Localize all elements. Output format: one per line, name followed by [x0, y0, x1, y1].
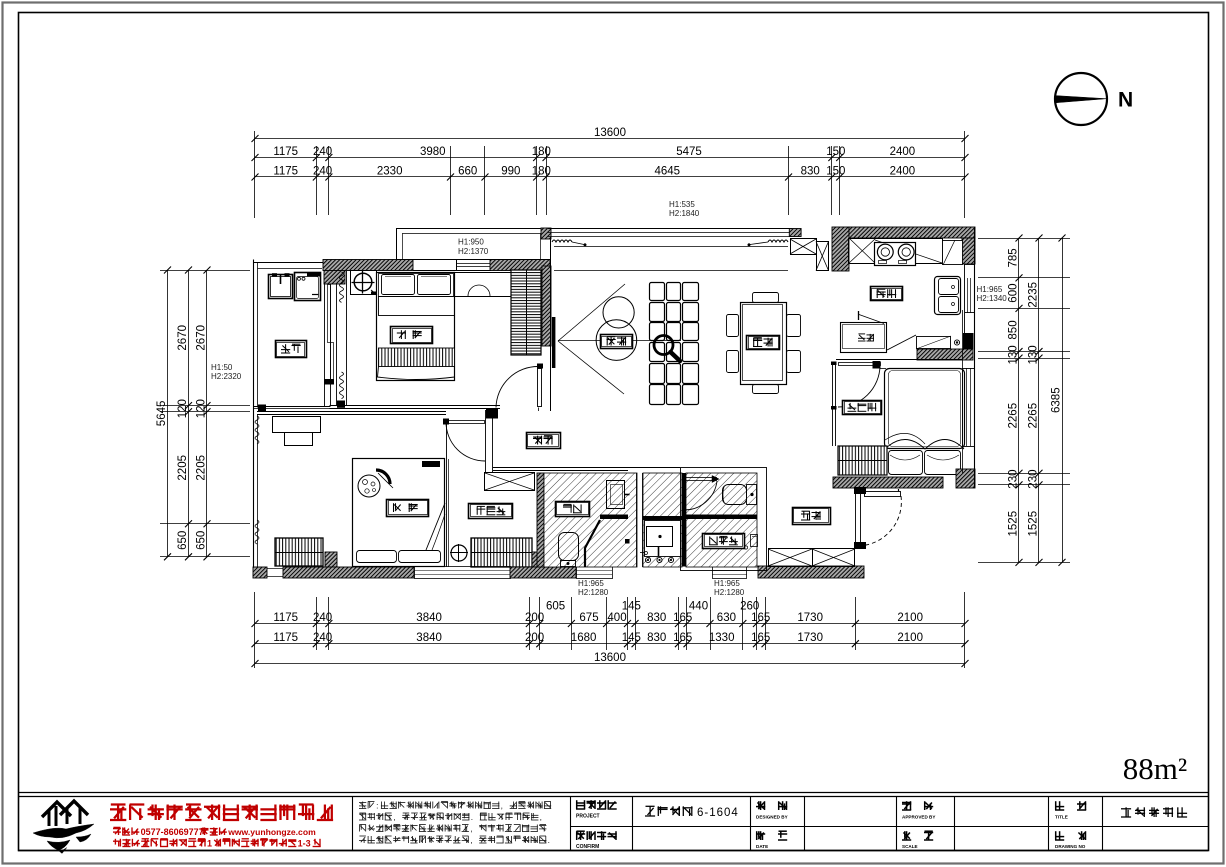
- svg-text:1175: 1175: [273, 166, 298, 178]
- svg-text:1175: 1175: [273, 146, 298, 158]
- svg-text:1730: 1730: [797, 612, 823, 624]
- svg-text:1730: 1730: [797, 632, 823, 644]
- svg-text:H2:1280: H2:1280: [578, 588, 609, 597]
- svg-text:4645: 4645: [655, 166, 681, 178]
- svg-text:TITLE: TITLE: [1055, 815, 1068, 820]
- svg-text:165: 165: [751, 632, 770, 644]
- svg-text:785: 785: [1008, 248, 1020, 267]
- svg-text:165: 165: [751, 612, 770, 624]
- svg-text:165: 165: [673, 632, 692, 644]
- svg-text:660: 660: [458, 166, 477, 178]
- svg-text:1-3: 1-3: [298, 839, 311, 849]
- svg-text:2265: 2265: [1008, 403, 1020, 429]
- svg-text:6385: 6385: [1051, 387, 1063, 413]
- svg-text:13600: 13600: [594, 127, 626, 139]
- svg-text:850: 850: [1008, 320, 1020, 339]
- svg-text:120: 120: [196, 399, 208, 418]
- svg-text:165: 165: [673, 612, 692, 624]
- svg-text:240: 240: [313, 632, 332, 644]
- svg-text:6-1604: 6-1604: [697, 807, 739, 819]
- svg-text:,: ,: [470, 835, 472, 845]
- svg-text:400: 400: [607, 612, 626, 624]
- svg-text:88m²: 88m²: [1123, 751, 1187, 786]
- svg-text:.: .: [548, 835, 550, 845]
- svg-text:H1:965: H1:965: [977, 285, 1003, 294]
- svg-text:230: 230: [1028, 470, 1040, 489]
- svg-text:630: 630: [717, 612, 736, 624]
- svg-text:200: 200: [525, 612, 544, 624]
- svg-text:2330: 2330: [377, 166, 403, 178]
- svg-text:200: 200: [525, 632, 544, 644]
- svg-text:145: 145: [622, 601, 641, 613]
- svg-text:H2:1340: H2:1340: [977, 294, 1008, 303]
- svg-text:0577-86069777: 0577-86069777: [141, 827, 204, 837]
- svg-text:240: 240: [313, 146, 332, 158]
- svg-text:150: 150: [826, 146, 845, 158]
- svg-text:3840: 3840: [416, 632, 442, 644]
- svg-text:,: ,: [501, 801, 503, 811]
- svg-text:830: 830: [647, 612, 666, 624]
- svg-text:2670: 2670: [177, 325, 189, 351]
- svg-text:H2:1370: H2:1370: [458, 247, 489, 256]
- svg-text:,: ,: [470, 824, 472, 834]
- svg-text:1680: 1680: [571, 632, 597, 644]
- svg-text:3840: 3840: [416, 612, 442, 624]
- svg-text:240: 240: [313, 612, 332, 624]
- svg-text::: :: [376, 801, 378, 811]
- svg-text:2400: 2400: [890, 146, 916, 158]
- svg-text:H1:965: H1:965: [578, 579, 604, 588]
- svg-text:,: ,: [540, 812, 542, 822]
- svg-text:130: 130: [1008, 345, 1020, 364]
- svg-text:,: ,: [393, 812, 395, 822]
- svg-text:130: 130: [1028, 345, 1040, 364]
- svg-text:650: 650: [196, 531, 208, 550]
- svg-text:600: 600: [1008, 284, 1020, 303]
- svg-text:240: 240: [313, 166, 332, 178]
- svg-text:180: 180: [532, 166, 551, 178]
- svg-text:650: 650: [177, 531, 189, 550]
- svg-text:230: 230: [1008, 470, 1020, 489]
- svg-text:H2:1840: H2:1840: [669, 209, 700, 218]
- svg-text:2235: 2235: [1028, 282, 1040, 308]
- svg-text:1: 1: [207, 839, 212, 849]
- svg-text:180: 180: [532, 146, 551, 158]
- svg-text:990: 990: [501, 166, 520, 178]
- svg-text:5645: 5645: [156, 401, 168, 427]
- svg-text:2100: 2100: [897, 632, 923, 644]
- svg-text:3980: 3980: [420, 146, 446, 158]
- svg-text:605: 605: [546, 601, 565, 613]
- svg-text:H2:1280: H2:1280: [714, 588, 745, 597]
- svg-text:SCALE: SCALE: [902, 844, 918, 849]
- svg-text:DESIGNED BY: DESIGNED BY: [756, 815, 788, 820]
- svg-text:APPROVED BY: APPROVED BY: [902, 815, 935, 820]
- svg-text:440: 440: [689, 601, 708, 613]
- svg-text:1525: 1525: [1008, 511, 1020, 537]
- svg-text:830: 830: [801, 166, 820, 178]
- svg-text:1175: 1175: [273, 632, 298, 644]
- svg-text:1175: 1175: [273, 612, 298, 624]
- svg-text:.: .: [471, 812, 473, 822]
- svg-text:H1:50: H1:50: [211, 363, 233, 372]
- svg-text:H1:965: H1:965: [714, 579, 740, 588]
- svg-text:150: 150: [826, 166, 845, 178]
- svg-text:1330: 1330: [709, 632, 735, 644]
- svg-text:CONFIRM: CONFIRM: [576, 844, 599, 850]
- svg-text:2205: 2205: [196, 455, 208, 481]
- svg-text:830: 830: [647, 632, 666, 644]
- svg-text:2205: 2205: [177, 455, 189, 481]
- svg-text:H1:535: H1:535: [669, 200, 695, 209]
- svg-text:H1:950: H1:950: [458, 238, 484, 247]
- svg-text:675: 675: [579, 612, 598, 624]
- svg-text:2670: 2670: [196, 325, 208, 351]
- svg-text:H2:2320: H2:2320: [211, 372, 242, 381]
- svg-text:DRAWING NO: DRAWING NO: [1055, 844, 1086, 849]
- svg-text:145: 145: [622, 632, 641, 644]
- svg-text:2265: 2265: [1028, 403, 1040, 429]
- svg-text:120: 120: [177, 399, 189, 418]
- svg-text:N: N: [1118, 89, 1133, 112]
- svg-text:www.yunhongze.com: www.yunhongze.com: [227, 827, 316, 837]
- svg-text:DATE: DATE: [756, 844, 768, 849]
- svg-text:PROJECT: PROJECT: [576, 814, 600, 820]
- svg-text:5475: 5475: [676, 146, 702, 158]
- svg-text:2100: 2100: [897, 612, 923, 624]
- svg-text:2400: 2400: [890, 166, 916, 178]
- svg-text:1525: 1525: [1028, 511, 1040, 537]
- svg-text:13600: 13600: [594, 652, 626, 664]
